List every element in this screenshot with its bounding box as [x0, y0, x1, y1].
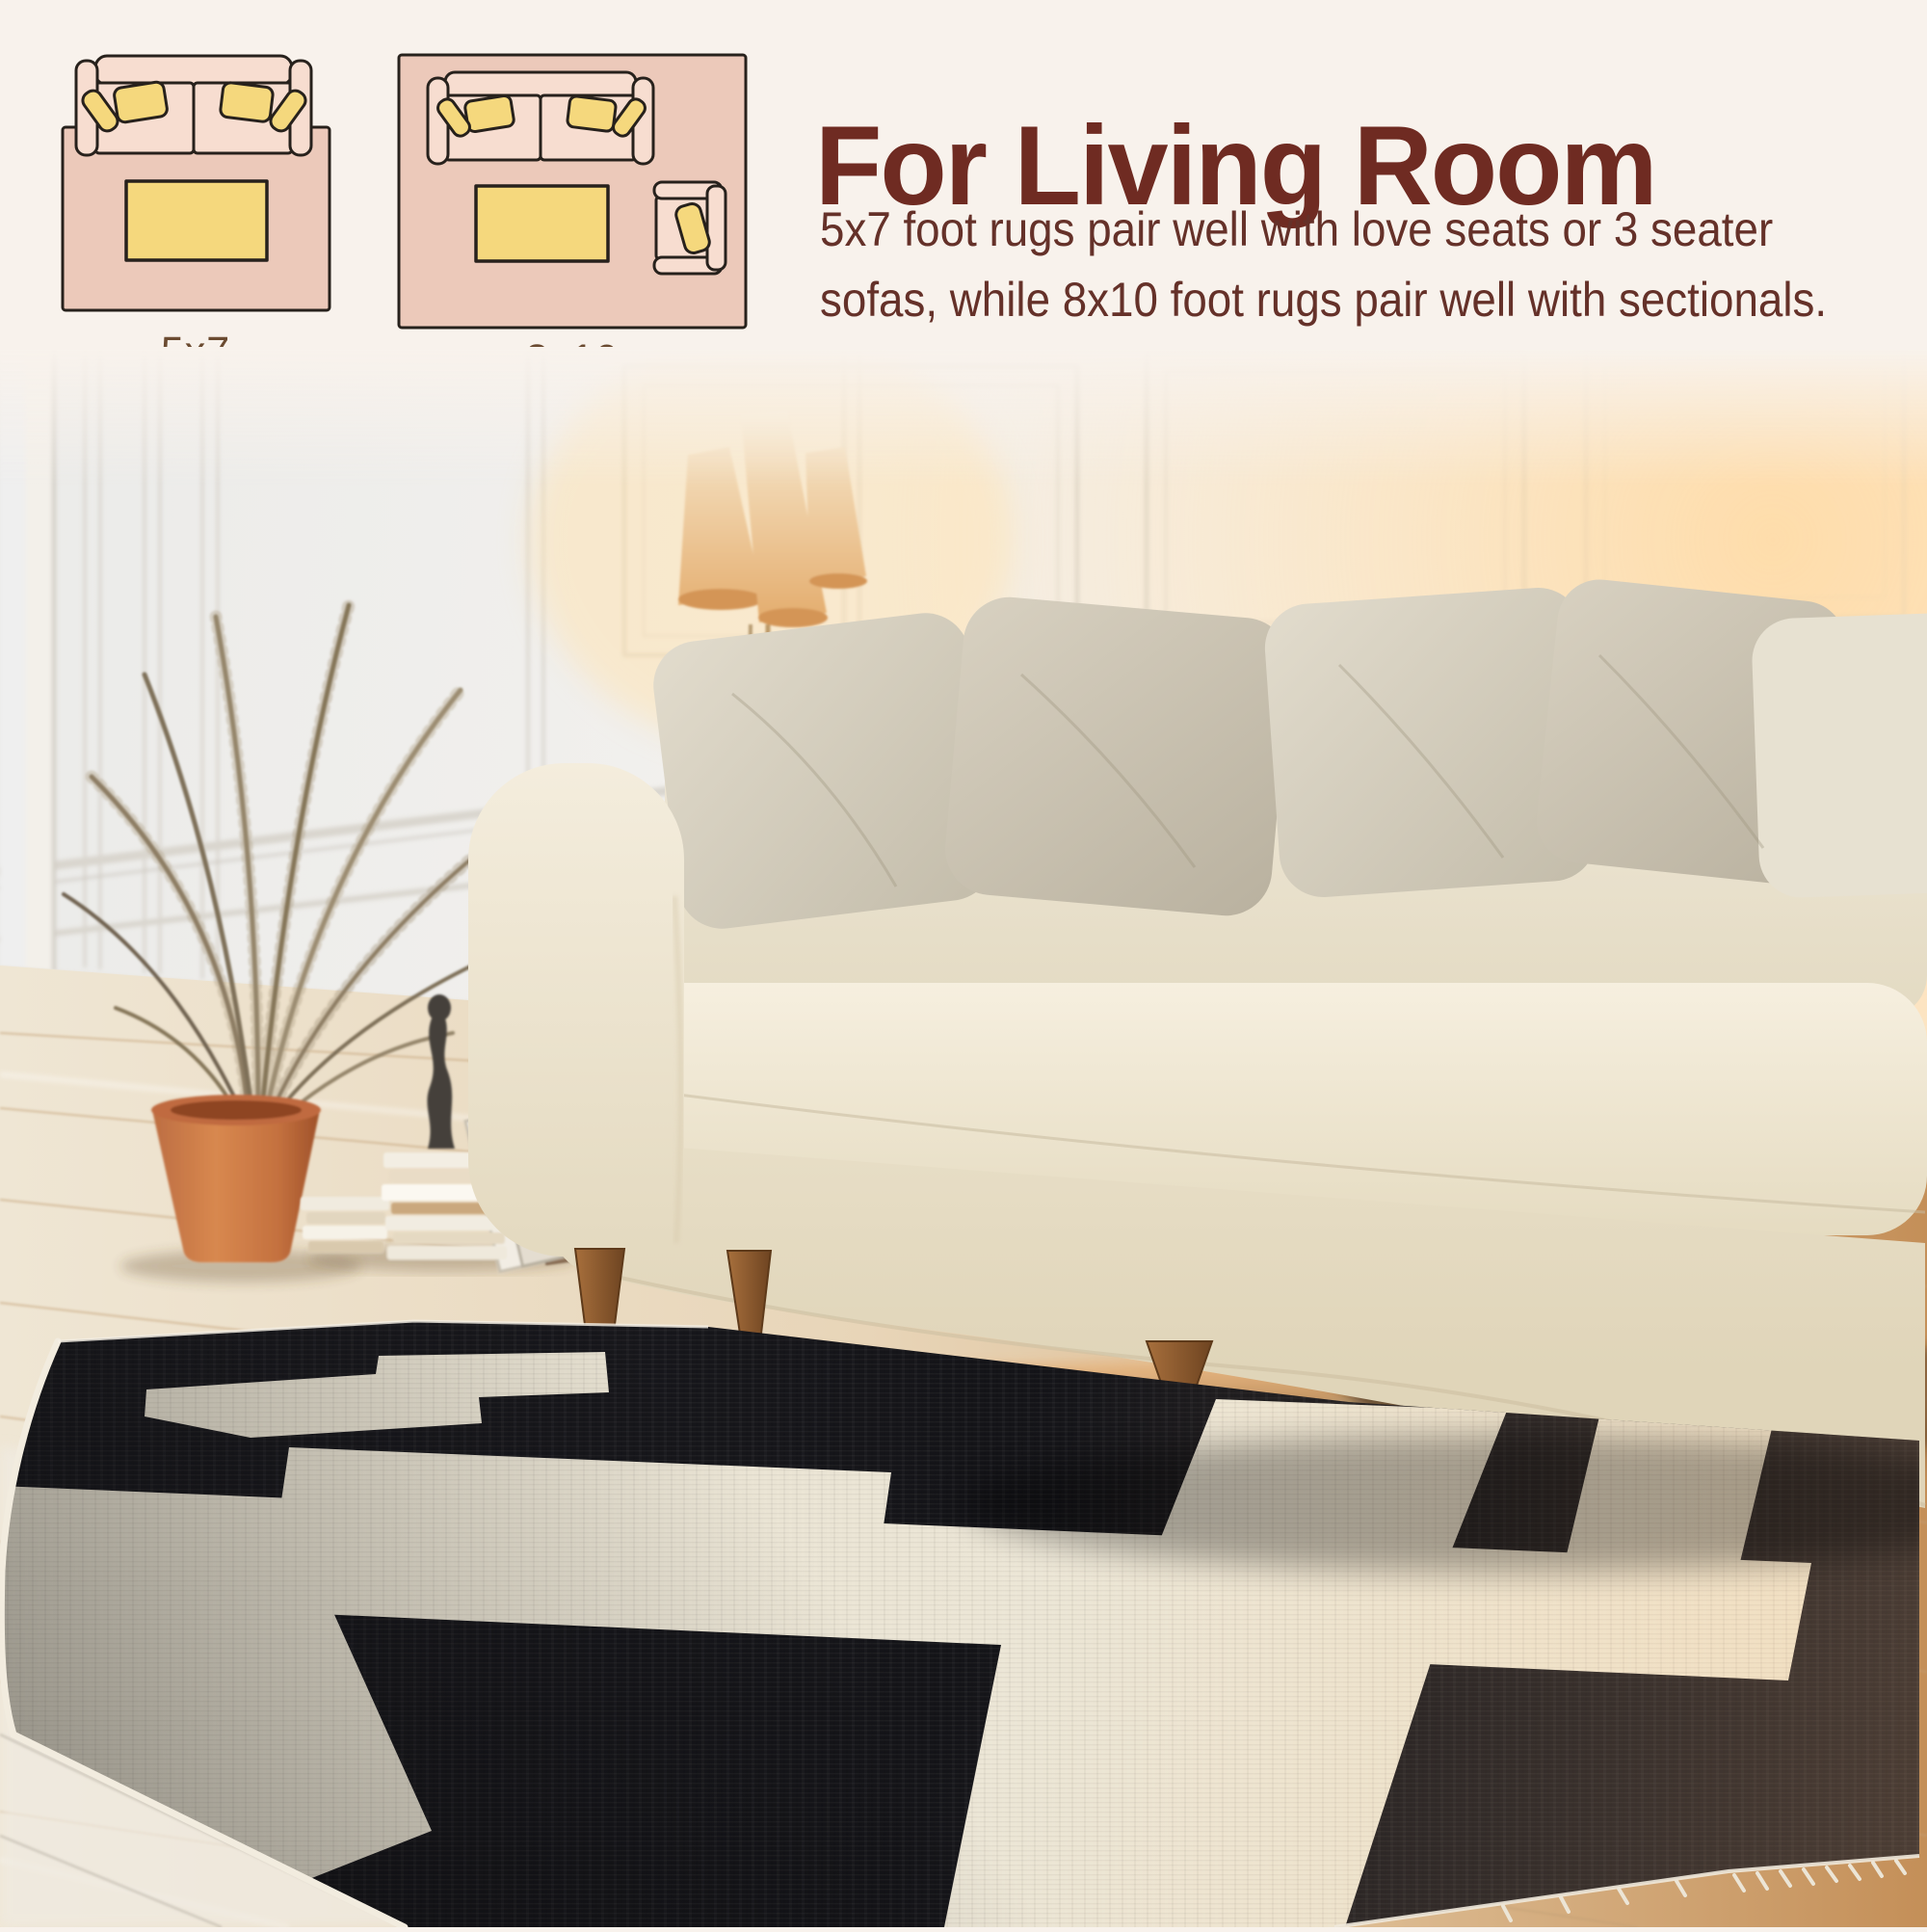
- coffee-table-icon: [476, 186, 608, 261]
- living-room-scene: [0, 347, 1927, 1927]
- description-line-1: 5x7 foot rugs pair well with love seats …: [820, 195, 1827, 265]
- description-line-2: sofas, while 8x10 foot rugs pair well wi…: [820, 265, 1827, 335]
- rug-product-infographic: 5x7 8x10 For Living Room 5x7 foot rugs p…: [0, 0, 1927, 1927]
- living-room-photo: [0, 347, 1927, 1927]
- sofa-top-view-icon: [76, 56, 311, 155]
- rug-5x7-diagram: [63, 56, 330, 310]
- coffee-table-icon: [126, 181, 267, 260]
- top-fade: [0, 347, 1927, 487]
- description-text: 5x7 foot rugs pair well with love seats …: [820, 195, 1827, 334]
- rug-size-diagrams: [0, 0, 771, 385]
- armchair-top-view-icon: [654, 182, 726, 274]
- rug-8x10-diagram: [399, 55, 746, 328]
- sofa-top-view-icon: [428, 72, 653, 164]
- sofa-arm: [468, 763, 684, 1257]
